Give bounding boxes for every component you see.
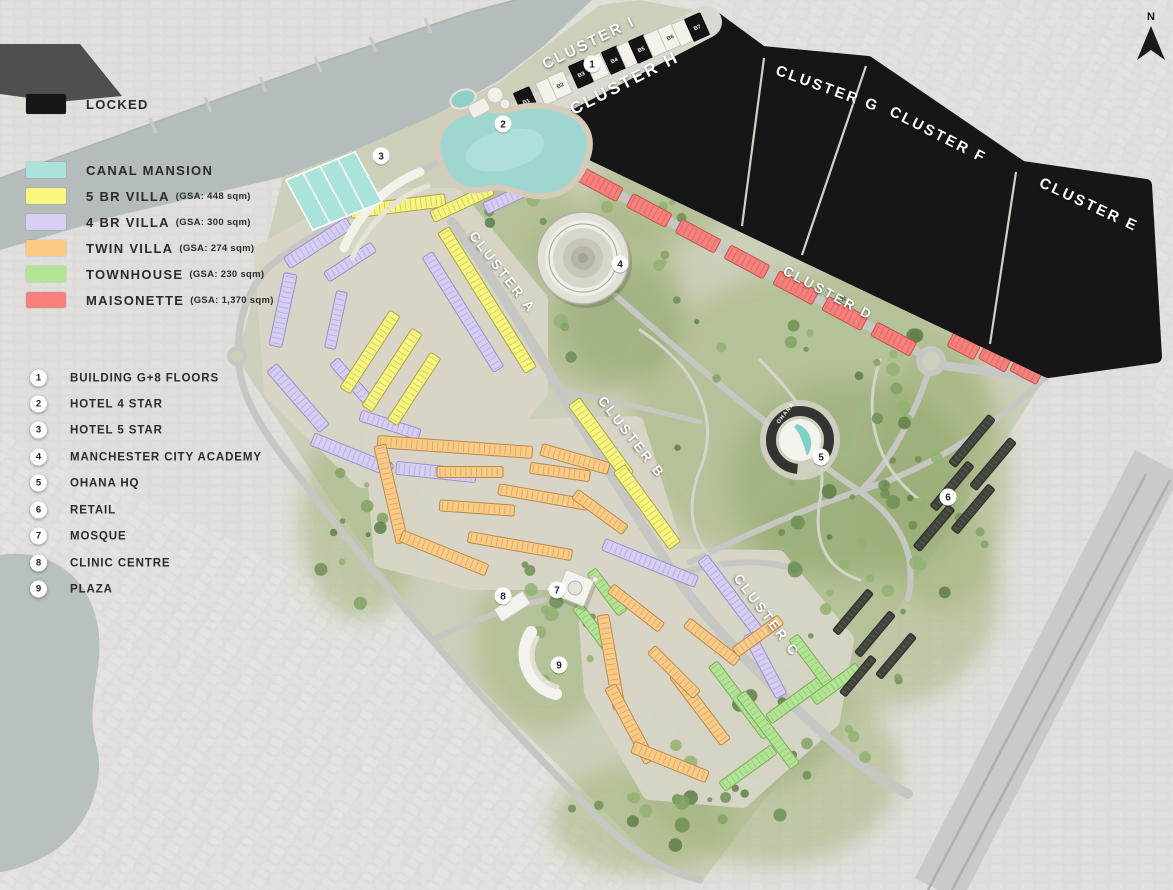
north-label: N: [1147, 11, 1155, 23]
marker-number: 6: [945, 493, 951, 504]
marker-number: 3: [378, 152, 384, 163]
map-marker-9[interactable]: 9: [551, 657, 568, 675]
marker-number: 1: [589, 60, 595, 71]
marker-number: 2: [500, 120, 506, 131]
housing-row: [437, 467, 503, 478]
marker-number: 9: [556, 661, 562, 672]
roundabout: [229, 348, 245, 364]
masterplan-map: B1B2B3B4B5B6B7OHANACLUSTER ICLUSTER HCLU…: [0, 0, 1173, 890]
map-marker-2[interactable]: 2: [495, 116, 512, 134]
marker-number: 8: [500, 592, 506, 603]
marker-number: 5: [818, 453, 824, 464]
map-marker-1[interactable]: 1: [584, 56, 601, 74]
map-marker-5[interactable]: 5: [813, 449, 830, 467]
map-marker-8[interactable]: 8: [495, 588, 512, 606]
map-marker-4[interactable]: 4: [612, 256, 629, 274]
marker-number: 4: [617, 260, 623, 271]
map-marker-6[interactable]: 6: [940, 489, 957, 507]
map-marker-7[interactable]: 7: [549, 582, 566, 600]
roundabout: [919, 349, 943, 373]
masterplan-canvas: B1B2B3B4B5B6B7OHANACLUSTER ICLUSTER HCLU…: [0, 0, 1173, 890]
marker-number: 7: [554, 586, 560, 597]
map-marker-3[interactable]: 3: [373, 148, 390, 166]
ohana-hq[interactable]: OHANA: [760, 400, 840, 480]
